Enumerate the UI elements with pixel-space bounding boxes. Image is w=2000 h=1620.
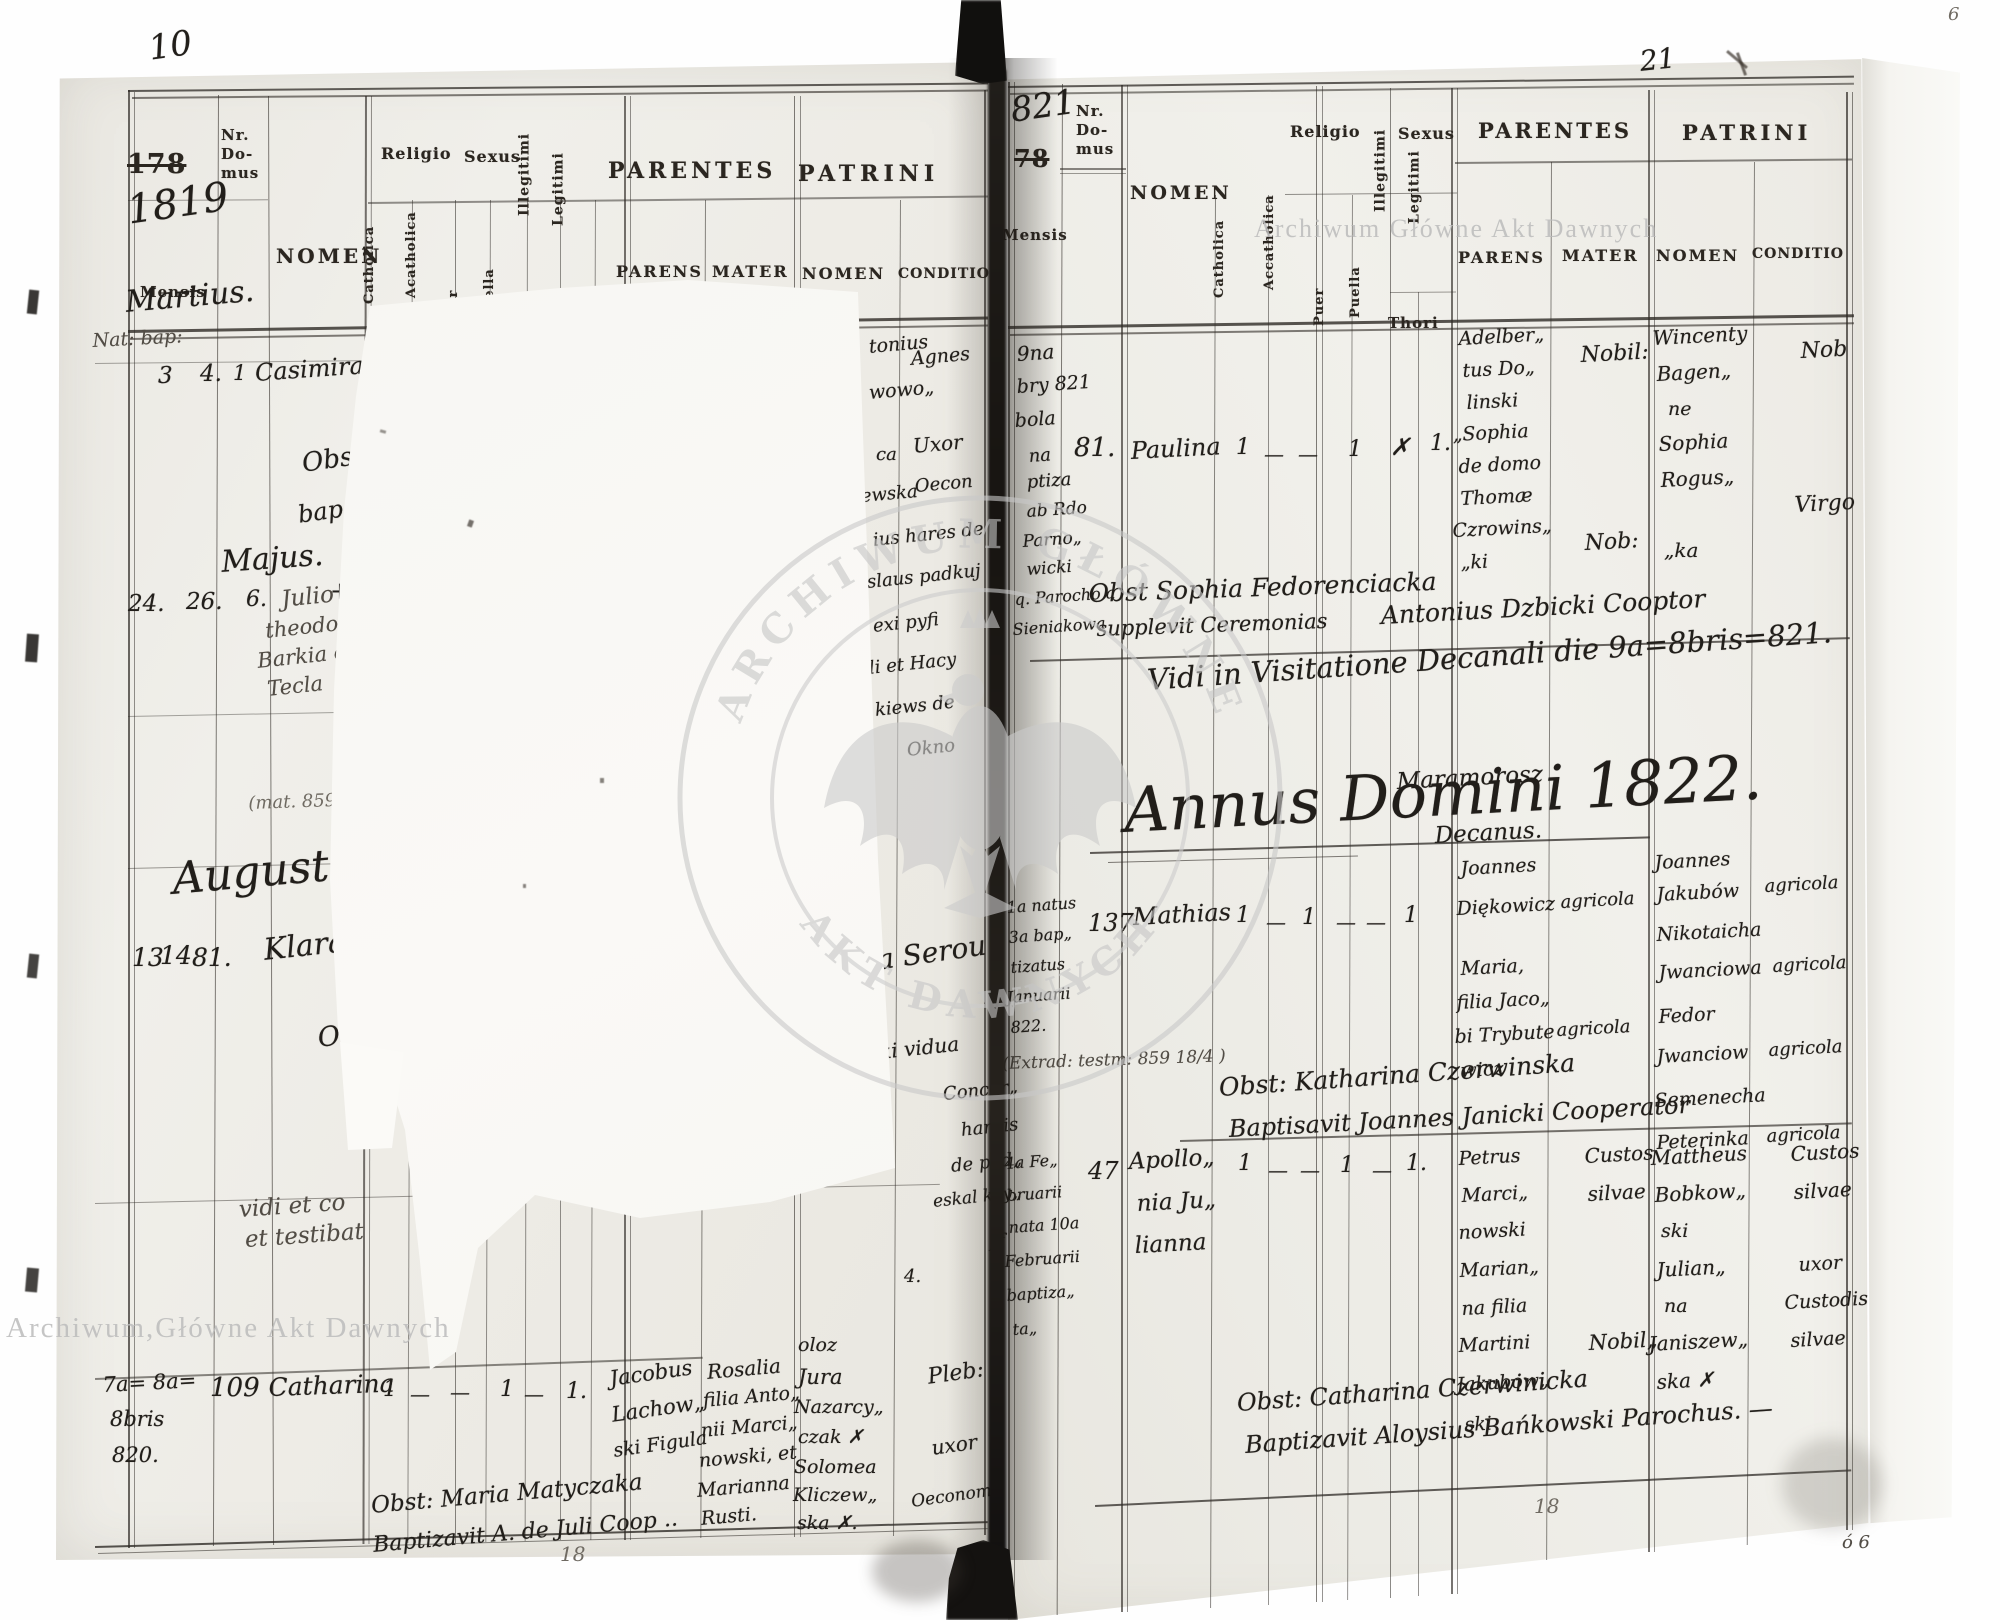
printed-label: Accatholica [1262,198,1278,290]
crossed-page-number: 178 [127,148,186,182]
handwriting-note: Jakubów [1656,880,1740,908]
printed-label: NOMEN [1656,246,1739,266]
register-scan: 178Nr. Do- musNOMENReligioSexusMensisCat… [0,0,2000,1620]
printed-label: Thori [1388,314,1439,333]
ink-mark [523,884,526,888]
printed-label: Illegitimi [1373,104,1391,212]
printed-label: Puella [1348,260,1364,318]
handwriting-note: Janiszew„ [1648,1327,1749,1357]
handwriting-note: 7a= 8a= [102,1367,197,1398]
handwriting-note: Custodis [1784,1288,1869,1316]
handwriting-note: 1 [233,360,246,386]
handwriting-note: 1 [500,1376,514,1404]
handwriting-note: Petrus [1458,1145,1521,1172]
handwriting-note: 1 [1348,436,1362,464]
handwriting-note: Mattheus [1650,1141,1748,1171]
handwriting-note: agricola [1764,872,1839,898]
handwriting-note: Catharina [268,1368,395,1404]
page-footer-number: 18 [1534,1494,1559,1519]
printed-label: MATER [1562,246,1639,266]
next-page-edge [1858,58,1962,1526]
printed-label: Acatholica [404,208,420,298]
handwriting-note: 1 [383,1376,397,1404]
handwriting-note: Fedor [1658,1003,1715,1030]
svg-text:AKT DAWNYCH: AKT DAWNYCH [791,901,1168,1029]
handwriting-note: 109 [210,1372,260,1405]
handwriting-note: 26. [186,588,223,617]
printed-label: Religio [381,144,452,164]
handwriting-note: — [410,1382,430,1407]
column-rule [1846,92,1848,1530]
handwriting-note: Joannes [1654,848,1731,876]
handwriting-note: ska ✗. [797,1512,858,1536]
smudge [872,1540,962,1602]
handwriting-note: 81. [1074,432,1115,465]
printed-label: NOMEN [1130,182,1232,206]
printed-label: PARENTES [1478,118,1632,144]
handwriting-note: nowski [1458,1218,1526,1245]
row-rule [1060,173,1126,174]
emblem-arc-text-bottom: AKT DAWNYCH [791,901,1168,1029]
printed-label: PATRINI [1682,120,1811,146]
handwriting-note: Jura [798,1364,843,1390]
handwriting-note: na [1664,1295,1688,1319]
printed-label: Catholica [1212,218,1228,298]
handwriting-note: Wincenty [1652,321,1748,351]
handwriting-note: Maria, [1460,955,1524,982]
handwriting-note: Nob: [1584,527,1639,557]
handwriting-note: Jwanciow [1656,1041,1749,1070]
ink-mark [600,778,604,783]
handwriting-note: 4. [200,360,222,389]
handwriting-note: 3 [158,362,173,391]
printed-label: Religio [1290,122,1361,142]
printed-label: PARENS [1458,248,1545,268]
handwriting-note: Martini [1458,1331,1531,1358]
ink-mark [27,954,39,979]
handwriting-note: silvae [1587,1179,1646,1207]
printed-label: CONDITIO [1752,246,1844,264]
handwriting-note: czak ✗ [798,1426,863,1450]
handwriting-note: 1. [1430,430,1451,458]
handwriting-note: Paulina [1130,431,1221,466]
handwriting-note: 14 [160,940,192,971]
handwriting-note: Julian„ [1656,1254,1726,1283]
ink-mark [25,634,39,663]
handwriting-note: silvae [1793,1177,1852,1205]
handwriting-note: Marian„ [1459,1256,1539,1284]
handwriting-note: uxor [1798,1252,1843,1278]
handwriting-note: „ka [1664,538,1698,563]
handwriting-note: Thomæ [1460,484,1533,511]
handwriting-note: — [1268,1158,1288,1183]
handwriting-note: 1 [1302,904,1316,932]
handwriting-note: ski [1661,1220,1688,1244]
printed-label: Legitimi [1407,128,1425,224]
handwriting-note: Nazarcy„ [794,1396,884,1420]
column-rule [1852,92,1853,1530]
handwriting-note: Sophia [1658,428,1729,457]
printed-label: Legitimi [551,132,569,226]
handwriting-note: Adelber„ [1458,324,1545,352]
month-heading: Majus. [220,537,325,582]
handwriting-note: Nat: bap: [92,325,183,353]
handwriting-note: Julio [280,581,335,615]
handwriting-note: — [1264,442,1284,467]
printed-label: PATRINI [798,161,939,189]
handwriting-note: 4. [904,1266,921,1289]
eagle-icon [824,608,1136,918]
handwriting-note: „Sophia [1452,420,1529,448]
handwriting-note: ca [876,444,897,467]
corner-number: 21 [1638,40,1677,79]
handwriting-note: na filia [1461,1295,1528,1322]
ink-mark [27,290,39,315]
handwriting-note: ne [1668,398,1691,422]
handwriting-note: „ki [1460,551,1489,576]
handwriting-note: silvae [1790,1327,1846,1354]
handwriting-note: agricola [1556,1016,1631,1042]
printed-label: NOMEN [802,264,885,284]
handwriting-note: Bagen„ [1656,358,1732,387]
handwriting-note: — [1300,1158,1320,1183]
smudge [1782,1438,1882,1530]
handwriting-note: 1 [1340,1152,1354,1180]
handwriting-note: — [1336,910,1356,935]
handwriting-note: Bobkow„ [1654,1178,1746,1208]
handwriting-note: 1. [1406,1150,1427,1178]
printed-label: Nr. Do- mus [1076,102,1114,158]
handwriting-note: 1. [566,1378,587,1406]
handwriting-note: tus Do„ [1462,356,1535,383]
printed-label: Nr. Do- mus [221,126,259,182]
handwriting-note: — [1372,1158,1392,1183]
archive-emblem-watermark: ARCHIWUM GŁÓWNE AKT DAWNYCH [660,478,1300,1118]
handwriting-note: 820. [112,1442,159,1468]
handwriting-note: de domo [1458,452,1542,480]
handwriting-note: Nob [1800,336,1848,366]
handwriting-note: 24. [128,590,165,619]
printed-label: MATER [712,262,789,282]
handwriting-note: ó 6 [1842,1532,1870,1555]
printed-label: Sexus [464,147,521,167]
handwriting-note: — [524,1382,544,1407]
handwriting-note: Joannes [1460,854,1537,882]
handwriting-note: lianna [1134,1228,1207,1260]
handwriting-note: — [1298,442,1318,467]
handwriting-note: 47 [1088,1156,1119,1186]
page-footer-number: 18 [560,1542,585,1567]
watermark-top-right: Archiwum Główne Akt Dawnych [1254,214,1658,244]
printed-label: Illegitimi [517,110,535,216]
handwriting-note: 8bris [110,1406,164,1432]
handwriting-note: 81. [192,942,232,973]
row-rule [1060,168,1126,170]
stray-mark: 6 [1948,4,1959,27]
printed-label: PARENS [616,262,703,282]
handwriting-note: 6. [246,586,267,614]
handwriting-note: agricola [1560,888,1635,914]
handwriting-note: filia Jaco„ [1456,987,1550,1016]
handwriting-note: Custos [1584,1140,1654,1169]
spine-top [955,0,1007,84]
handwriting-note: 1 [1404,902,1418,930]
handwriting-note: nia Ju„ [1136,1186,1217,1219]
handwriting-note: Rusti. [700,1503,758,1532]
watermark-bottom-left: Archiwum,Główne Akt Dawnych [6,1312,451,1345]
handwriting-note: agricola [1772,952,1847,978]
printed-label: Catholica [362,222,378,304]
handwriting-note: — [1366,910,1386,935]
handwriting-note: Nobil: [1580,338,1649,369]
handwriting-note: ✗ [1390,432,1410,462]
printed-label: Puer [1312,278,1328,326]
handwriting-note: Custos [1790,1138,1860,1167]
handwriting-note: 1 [1238,1150,1252,1178]
handwriting-note: Marci„ [1461,1182,1529,1209]
ink-mark [25,1268,39,1293]
handwriting-note: 1 [1236,434,1250,462]
handwriting-note: ska ✗ [1656,1367,1715,1395]
handwriting-note: — [450,1380,470,1405]
handwriting-note: Kliczew„ [793,1484,877,1508]
handwriting-note: Virgo [1794,489,1856,520]
printed-label: PARENTES [608,158,776,186]
handwriting-note: agricola [1768,1036,1843,1062]
handwriting-note: linski [1466,389,1519,415]
handwriting-note: Apollo„ [1128,1144,1215,1177]
corner-number: 10 [146,22,195,70]
handwriting-note: Solomea [794,1456,877,1480]
handwriting-note: Rogus„ [1660,464,1735,493]
handwriting-note: oloz [798,1334,837,1358]
